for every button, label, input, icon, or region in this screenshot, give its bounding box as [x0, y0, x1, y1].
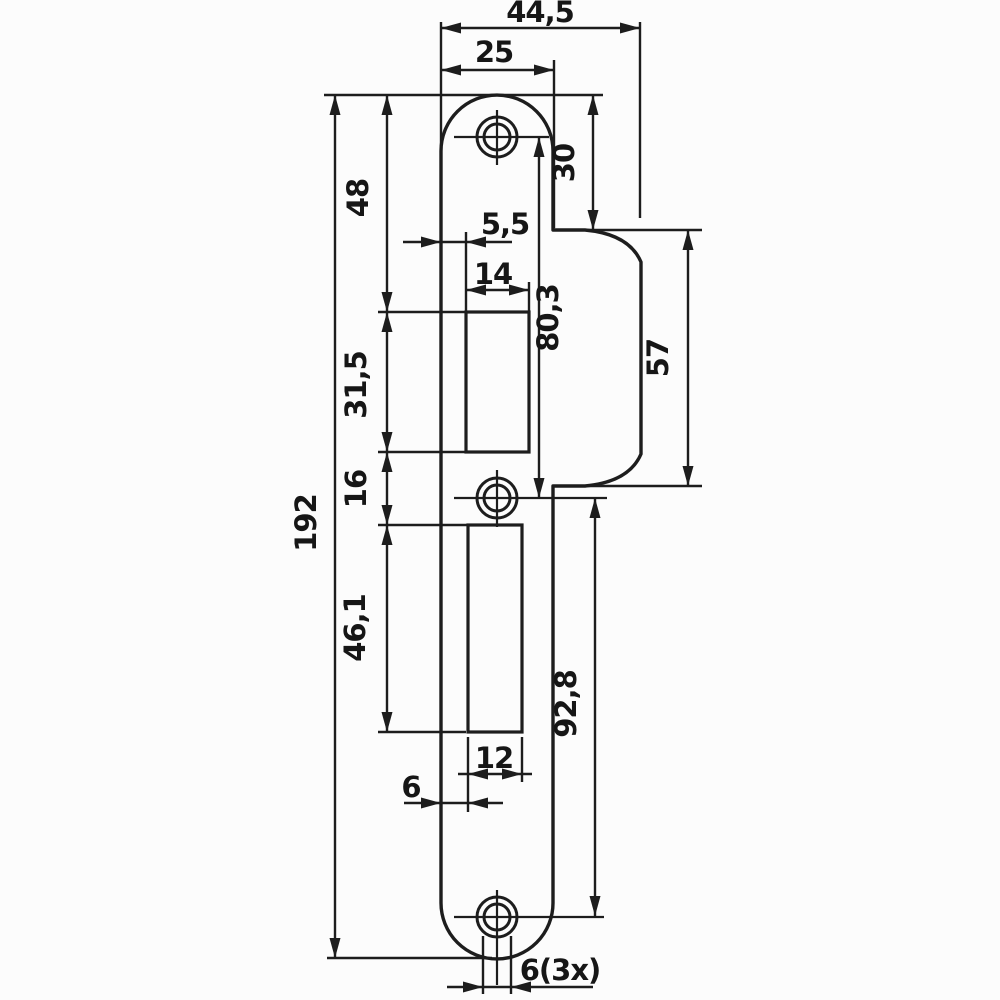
- arrowhead-left: [441, 65, 461, 76]
- dimension-lip-length: 57: [641, 230, 694, 486]
- arrowhead-left: [463, 982, 483, 993]
- arrowhead-right: [468, 798, 488, 809]
- dim-label-edge-to-bolt-cutout: 6: [401, 770, 420, 804]
- arrowhead-top: [588, 95, 599, 115]
- arrowhead-bottom: [382, 292, 393, 312]
- dim-label-bolt-cutout-width: 12: [475, 741, 513, 775]
- dim-label-edge-to-latch-cutout: 5,5: [481, 207, 529, 241]
- arrowhead-bottom: [588, 210, 599, 230]
- strike-plate: [441, 95, 641, 985]
- arrowhead-right: [534, 65, 554, 76]
- plate-outline: [441, 95, 641, 959]
- arrowhead-bottom: [534, 478, 545, 498]
- arrowhead-top: [683, 230, 694, 250]
- dimension-plate-width: 25: [441, 35, 554, 76]
- dim-label-top-to-lip: 30: [547, 144, 581, 182]
- dimension-edge-to-latch-cutout: 5,5: [403, 207, 529, 248]
- arrowhead-top: [382, 525, 393, 545]
- dim-label-screw-hole-diameter: 6(3x): [520, 953, 601, 987]
- arrowhead-top: [590, 498, 601, 518]
- dimension-cutout-gap: 16: [339, 452, 393, 525]
- dim-label-top-to-latch-cutout: 48: [341, 179, 375, 217]
- dim-label-latch-cutout-width: 14: [474, 257, 512, 291]
- arrowhead-bottom: [382, 505, 393, 525]
- dim-label-mid-hole-to-bottom-hole: 92,8: [549, 670, 583, 738]
- arrowhead-bottom: [683, 466, 694, 486]
- arrowhead-bottom: [382, 712, 393, 732]
- drawing-canvas: 44,5 25 5,5 14 12 6 6(3x): [0, 0, 1000, 1000]
- technical-drawing: 44,5 25 5,5 14 12 6 6(3x): [0, 0, 1000, 1000]
- arrowhead-top: [382, 312, 393, 332]
- dimension-top-hole-to-mid-hole: 80,3: [531, 137, 565, 498]
- arrowhead-left: [441, 23, 461, 34]
- dimension-overall-height: 192: [289, 95, 341, 958]
- dim-label-latch-cutout-height: 31,5: [339, 351, 373, 419]
- screw-hole-middle-crosshair: [454, 470, 607, 527]
- latch-cutout: [466, 312, 529, 452]
- dim-label-top-hole-to-mid-hole: 80,3: [531, 284, 565, 352]
- dim-label-plate-width: 25: [475, 35, 513, 69]
- arrowhead-top: [382, 452, 393, 472]
- dimension-bolt-cutout-height: 46,1: [338, 525, 393, 732]
- arrowhead-top: [330, 95, 341, 115]
- arrowhead-left: [421, 798, 441, 809]
- bolt-cutout: [468, 525, 522, 732]
- dim-label-overall-width: 44,5: [506, 0, 574, 29]
- dim-label-cutout-gap: 16: [339, 470, 373, 508]
- screw-hole-middle: [454, 470, 607, 527]
- dimension-overall-width: 44,5: [441, 0, 640, 34]
- dim-label-overall-height: 192: [289, 494, 323, 552]
- arrowhead-bottom: [590, 896, 601, 916]
- dimension-mid-hole-to-bottom-hole: 92,8: [549, 498, 601, 916]
- arrowhead-right: [620, 23, 640, 34]
- dimension-top-to-latch-cutout: 48: [341, 95, 393, 312]
- dim-label-lip-length: 57: [641, 339, 675, 377]
- arrowhead-left: [421, 237, 441, 248]
- arrowhead-top: [382, 95, 393, 115]
- dimension-latch-cutout-height: 31,5: [339, 312, 393, 452]
- arrowhead-bottom: [382, 432, 393, 452]
- arrowhead-top: [534, 137, 545, 157]
- dimension-latch-cutout-width: 14: [466, 257, 529, 296]
- arrowhead-bottom: [330, 938, 341, 958]
- dim-label-bolt-cutout-height: 46,1: [338, 594, 372, 662]
